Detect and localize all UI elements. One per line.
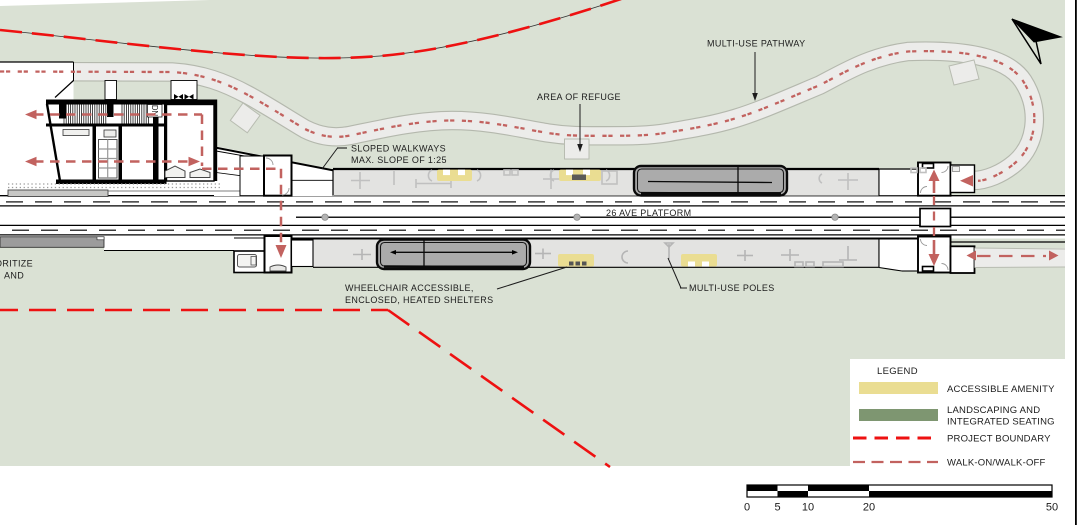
svg-text:5: 5	[774, 502, 780, 514]
svg-text:50: 50	[1046, 502, 1058, 514]
svg-text:0: 0	[744, 502, 750, 514]
svg-text:10: 10	[802, 502, 814, 514]
svg-text:ACCESSIBLE AMENITY: ACCESSIBLE AMENITY	[947, 384, 1055, 395]
svg-text:MULTI-USE PATHWAY: MULTI-USE PATHWAY	[707, 39, 805, 49]
svg-text:INTEGRATED SEATING: INTEGRATED SEATING	[947, 417, 1055, 428]
svg-text:PRIORITIZE: PRIORITIZE	[0, 259, 33, 269]
svg-text:PROJECT BOUNDARY: PROJECT BOUNDARY	[947, 434, 1051, 445]
svg-text:AND: AND	[4, 271, 24, 281]
svg-text:MULTI-USE POLES: MULTI-USE POLES	[689, 283, 775, 293]
svg-text:AREA OF REFUGE: AREA OF REFUGE	[537, 92, 621, 102]
svg-text:26 AVE PLATFORM: 26 AVE PLATFORM	[606, 208, 691, 218]
svg-text:LANDSCAPING AND: LANDSCAPING AND	[947, 405, 1040, 416]
svg-text:20: 20	[863, 502, 875, 514]
svg-text:LEGEND: LEGEND	[877, 366, 918, 377]
svg-text:WHEELCHAIR ACCESSIBLE,: WHEELCHAIR ACCESSIBLE,	[345, 283, 474, 293]
svg-text:ENCLOSED, HEATED SHELTERS: ENCLOSED, HEATED SHELTERS	[345, 295, 493, 305]
svg-text:SLOPED WALKWAYS: SLOPED WALKWAYS	[351, 144, 446, 154]
svg-text:MAX. SLOPE OF 1:25: MAX. SLOPE OF 1:25	[351, 155, 447, 165]
svg-text:WALK-ON/WALK-OFF: WALK-ON/WALK-OFF	[947, 458, 1046, 469]
